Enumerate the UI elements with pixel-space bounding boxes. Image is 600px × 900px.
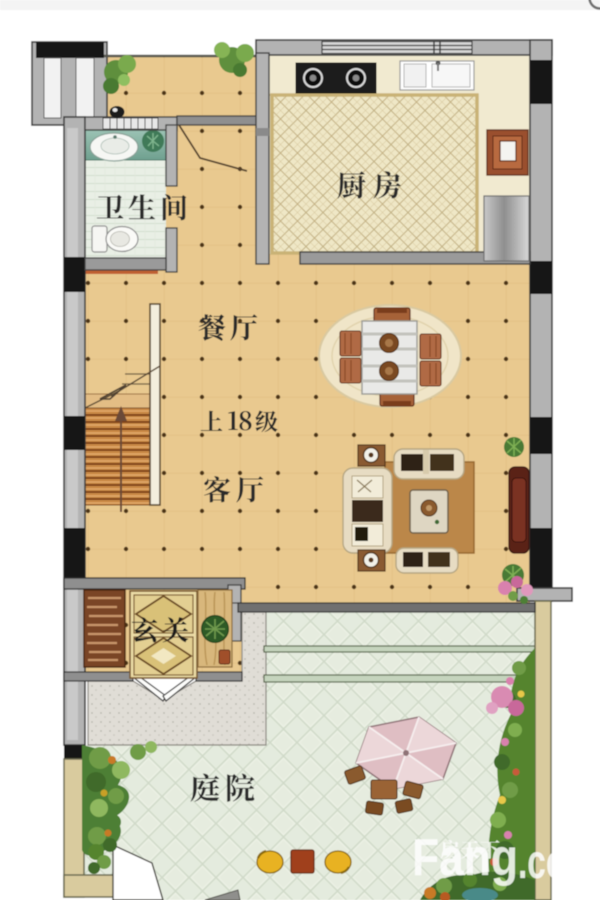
- svg-text:.com: .com: [518, 836, 596, 889]
- svg-text:Fang: Fang: [412, 829, 518, 887]
